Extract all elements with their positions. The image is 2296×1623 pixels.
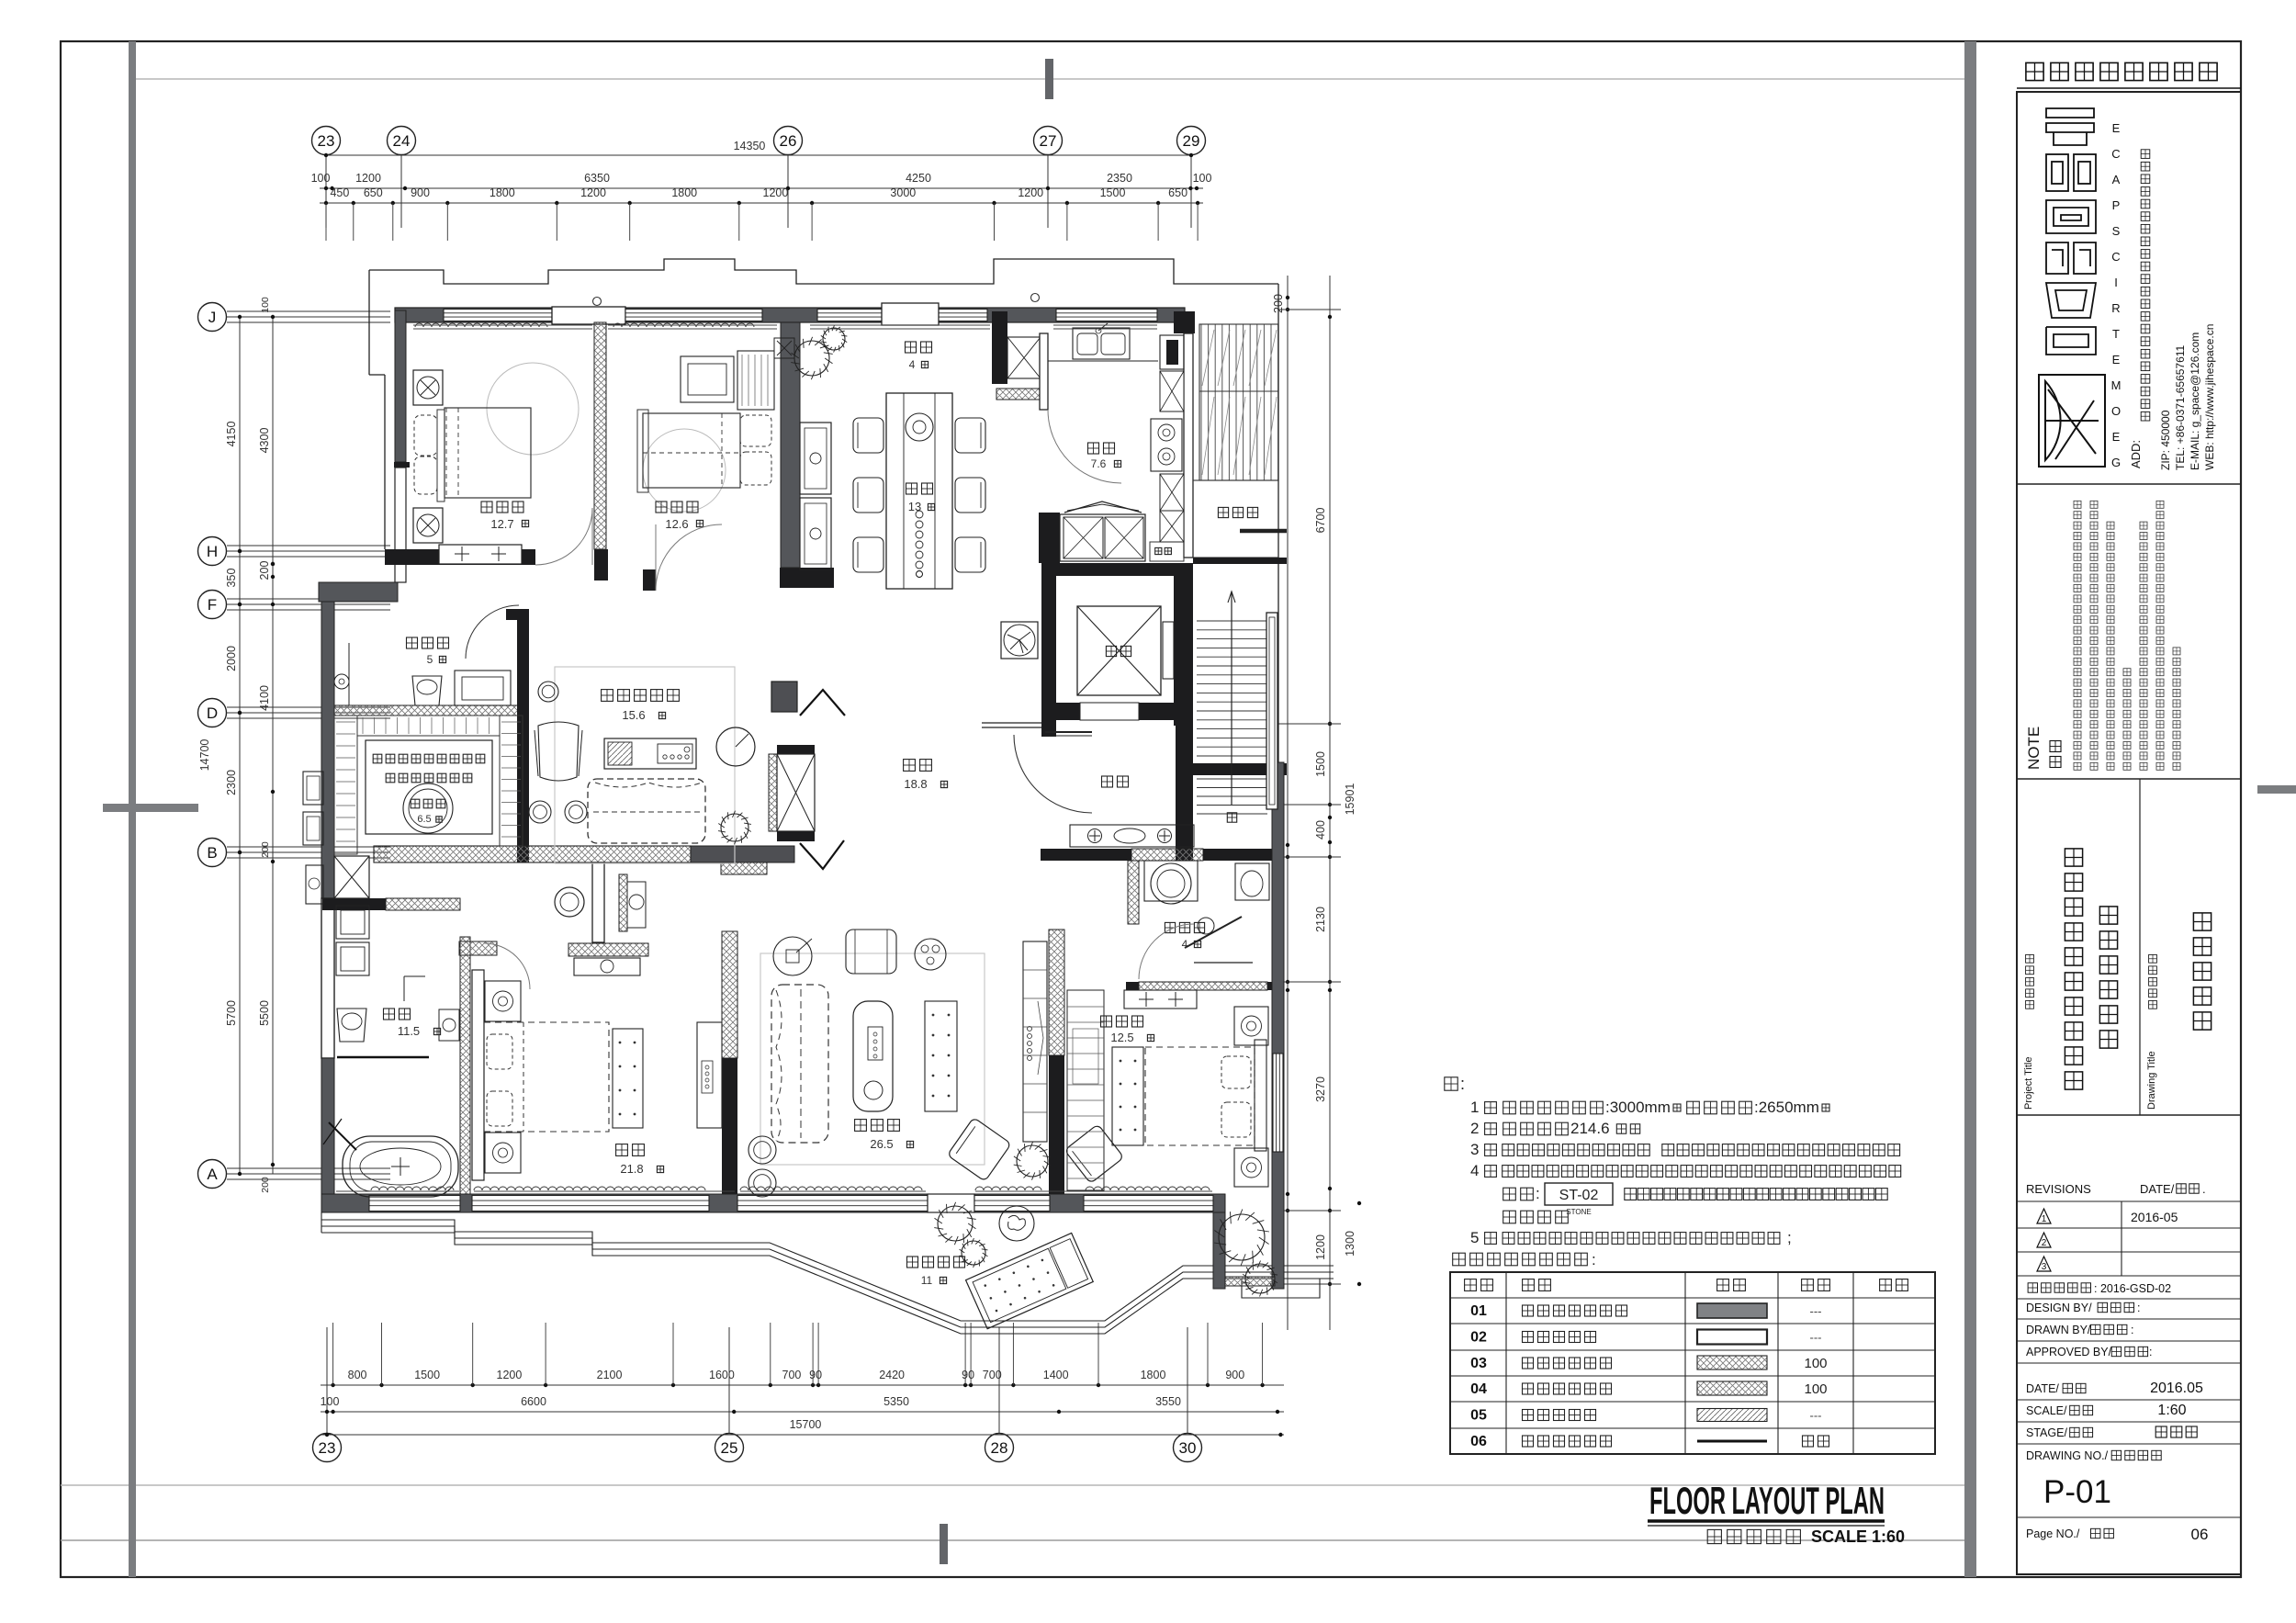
- svg-text:400: 400: [1314, 820, 1327, 840]
- svg-text:04: 04: [1470, 1381, 1487, 1397]
- svg-text:06: 06: [2191, 1526, 2209, 1543]
- svg-text:1500: 1500: [1100, 186, 1126, 199]
- svg-text:S: S: [2112, 224, 2121, 238]
- svg-text:FLOOR LAYOUT PLAN: FLOOR LAYOUT PLAN: [1649, 1479, 1885, 1522]
- svg-text::: :: [2137, 1302, 2140, 1314]
- svg-text:---: ---: [1810, 1409, 1822, 1423]
- svg-text:27: 27: [1040, 132, 1057, 150]
- svg-text:D: D: [207, 704, 218, 722]
- svg-text:28: 28: [991, 1439, 1008, 1457]
- svg-text:14350: 14350: [734, 140, 766, 152]
- svg-text:2: 2: [2042, 1238, 2047, 1248]
- svg-text:2: 2: [1470, 1120, 1479, 1137]
- svg-text:1400: 1400: [1043, 1369, 1069, 1381]
- svg-text:90: 90: [809, 1369, 822, 1381]
- svg-text:J: J: [208, 309, 217, 326]
- svg-text:3: 3: [1470, 1141, 1479, 1158]
- svg-text:T: T: [2112, 327, 2120, 341]
- svg-text:1200: 1200: [1018, 186, 1043, 199]
- svg-text:ZIP: 450000: ZIP: 450000: [2159, 410, 2172, 470]
- svg-text:H: H: [207, 543, 218, 560]
- svg-text:E: E: [2112, 430, 2121, 444]
- svg-text:4100: 4100: [258, 685, 271, 711]
- svg-text::: :: [2131, 1324, 2133, 1336]
- svg-text:1800: 1800: [671, 186, 697, 199]
- svg-text:100: 100: [260, 297, 271, 313]
- svg-text:02: 02: [1470, 1330, 1487, 1346]
- svg-text:11: 11: [921, 1274, 933, 1287]
- svg-text:700: 700: [782, 1369, 802, 1381]
- svg-text:F: F: [208, 596, 217, 614]
- svg-text:6350: 6350: [584, 172, 610, 185]
- svg-text:2016.05: 2016.05: [2150, 1381, 2203, 1396]
- svg-text:11.5: 11.5: [398, 1024, 420, 1038]
- svg-text:1200: 1200: [1314, 1234, 1327, 1260]
- svg-text:15901: 15901: [1344, 783, 1356, 816]
- svg-text:214.6: 214.6: [1570, 1120, 1610, 1137]
- svg-text:Project Title: Project Title: [2023, 1057, 2034, 1110]
- svg-text:A: A: [2112, 173, 2121, 186]
- svg-text:DATE/: DATE/: [2140, 1182, 2175, 1196]
- svg-text:200: 200: [258, 561, 271, 580]
- svg-text:4: 4: [1182, 938, 1188, 951]
- svg-text:2016-05: 2016-05: [2131, 1210, 2178, 1224]
- svg-text::: :: [1592, 1251, 1596, 1268]
- svg-text:15700: 15700: [790, 1418, 822, 1431]
- svg-text:5350: 5350: [884, 1395, 909, 1408]
- svg-text:1800: 1800: [1141, 1369, 1166, 1381]
- svg-text:REVISIONS: REVISIONS: [2026, 1182, 2091, 1196]
- svg-text:WEB: http://www.jihespace.cn: WEB: http://www.jihespace.cn: [2203, 324, 2216, 470]
- svg-text:26.5: 26.5: [870, 1137, 893, 1151]
- svg-text:650: 650: [364, 186, 383, 199]
- svg-text:450: 450: [330, 186, 349, 199]
- svg-text:650: 650: [1168, 186, 1187, 199]
- svg-text:29: 29: [1183, 132, 1200, 150]
- svg-text:M: M: [2111, 378, 2122, 392]
- svg-text:ST-02: ST-02: [1559, 1188, 1599, 1203]
- svg-text:DATE/: DATE/: [2026, 1382, 2059, 1395]
- svg-text:P-01: P-01: [2043, 1474, 2111, 1510]
- svg-text:3000: 3000: [890, 186, 916, 199]
- svg-text:6.5: 6.5: [417, 814, 431, 825]
- svg-text:350: 350: [225, 569, 238, 588]
- svg-text::3000mm: :3000mm: [1605, 1099, 1671, 1116]
- svg-text:A: A: [207, 1166, 218, 1183]
- svg-text:14700: 14700: [198, 739, 211, 772]
- svg-text:E: E: [2112, 121, 2121, 135]
- svg-text:23: 23: [319, 1439, 336, 1457]
- svg-text:SCALE/: SCALE/: [2026, 1404, 2067, 1417]
- svg-text:15.6: 15.6: [622, 708, 645, 722]
- svg-text:12.7: 12.7: [490, 517, 513, 531]
- svg-text:1500: 1500: [1314, 751, 1327, 777]
- svg-text:23: 23: [318, 132, 335, 150]
- svg-text:12.6: 12.6: [665, 517, 688, 531]
- svg-text:3550: 3550: [1155, 1395, 1181, 1408]
- svg-text:5700: 5700: [225, 1000, 238, 1026]
- svg-text:1800: 1800: [490, 186, 515, 199]
- svg-text:90: 90: [962, 1369, 974, 1381]
- svg-text:6700: 6700: [1314, 508, 1327, 534]
- svg-text:STONE: STONE: [1566, 1208, 1591, 1216]
- svg-text:200: 200: [260, 841, 271, 858]
- svg-text:100: 100: [1193, 172, 1212, 185]
- svg-text:5: 5: [1470, 1229, 1479, 1246]
- svg-text:1300: 1300: [1344, 1231, 1356, 1257]
- svg-text:---: ---: [1810, 1331, 1822, 1345]
- svg-text:1: 1: [1470, 1099, 1479, 1116]
- svg-text:2300: 2300: [225, 770, 238, 795]
- svg-text:5: 5: [427, 653, 433, 666]
- svg-text:APPROVED BY/: APPROVED BY/: [2026, 1346, 2112, 1358]
- svg-text:SCALE 1:60: SCALE 1:60: [1811, 1527, 1905, 1546]
- svg-text:1:60: 1:60: [2157, 1403, 2186, 1418]
- svg-text:700: 700: [983, 1369, 1002, 1381]
- svg-text:NOTE: NOTE: [2025, 727, 2043, 770]
- svg-text:1200: 1200: [355, 172, 381, 185]
- svg-text:1: 1: [2042, 1214, 2047, 1224]
- svg-text:05: 05: [1470, 1408, 1487, 1424]
- svg-text:1500: 1500: [414, 1369, 440, 1381]
- svg-text:100: 100: [1804, 1381, 1827, 1397]
- svg-text:2100: 2100: [597, 1369, 623, 1381]
- svg-text:1600: 1600: [709, 1369, 735, 1381]
- svg-text:900: 900: [411, 186, 430, 199]
- svg-text:1200: 1200: [763, 186, 789, 199]
- svg-text::: :: [1460, 1075, 1465, 1093]
- svg-text:03: 03: [1470, 1356, 1487, 1371]
- svg-text:DRAWN BY/: DRAWN BY/: [2026, 1324, 2091, 1336]
- svg-text:24: 24: [393, 132, 411, 150]
- svg-text:2420: 2420: [879, 1369, 905, 1381]
- svg-text:4150: 4150: [225, 422, 238, 447]
- svg-text::: :: [1536, 1185, 1540, 1202]
- svg-text:21.8: 21.8: [620, 1162, 643, 1176]
- svg-text:13: 13: [908, 500, 921, 513]
- svg-text:2130: 2130: [1314, 907, 1327, 932]
- svg-text:6600: 6600: [521, 1395, 546, 1408]
- svg-text:E: E: [2112, 353, 2121, 366]
- svg-text:900: 900: [1225, 1369, 1244, 1381]
- svg-text:DRAWING NO./: DRAWING NO./: [2026, 1449, 2109, 1462]
- svg-text:.: .: [2202, 1182, 2206, 1196]
- svg-text:30: 30: [1179, 1439, 1197, 1457]
- svg-text:Page NO./: Page NO./: [2026, 1527, 2080, 1540]
- svg-text:25: 25: [721, 1439, 738, 1457]
- svg-text:ADD:: ADD:: [2129, 440, 2143, 468]
- svg-text:DESIGN BY/: DESIGN BY/: [2026, 1302, 2092, 1314]
- svg-text:100: 100: [1804, 1356, 1827, 1371]
- svg-text:200: 200: [260, 1177, 271, 1193]
- svg-text:01: 01: [1470, 1303, 1487, 1319]
- svg-text:18.8: 18.8: [904, 777, 927, 791]
- svg-text:O: O: [2111, 404, 2121, 418]
- svg-text:Drawing Title: Drawing Title: [2146, 1051, 2157, 1110]
- svg-text:;: ;: [1787, 1229, 1792, 1246]
- svg-text:3270: 3270: [1314, 1076, 1327, 1102]
- svg-text:E-MAIL: g_space@126.com: E-MAIL: g_space@126.com: [2189, 332, 2201, 470]
- svg-text:4: 4: [909, 358, 916, 371]
- svg-text:G: G: [2111, 456, 2121, 469]
- svg-text:06: 06: [1470, 1434, 1487, 1449]
- svg-text:100: 100: [311, 172, 331, 185]
- svg-text:---: ---: [1810, 1304, 1822, 1318]
- svg-text:I: I: [2114, 276, 2118, 289]
- svg-text:STAGE/: STAGE/: [2026, 1426, 2067, 1439]
- svg-text::: :: [2149, 1346, 2152, 1358]
- svg-text:800: 800: [348, 1369, 367, 1381]
- svg-text:: 2016-GSD-02: : 2016-GSD-02: [2094, 1282, 2171, 1295]
- svg-text:12.5: 12.5: [1110, 1031, 1133, 1044]
- svg-text:P: P: [2112, 198, 2121, 212]
- svg-text:TEL: +86-0371-65657611: TEL: +86-0371-65657611: [2174, 344, 2187, 470]
- svg-text:1200: 1200: [497, 1369, 523, 1381]
- svg-text:B: B: [207, 844, 217, 862]
- svg-text:26: 26: [780, 132, 797, 150]
- svg-text:100: 100: [321, 1395, 340, 1408]
- svg-text::2650mm: :2650mm: [1754, 1099, 1819, 1116]
- svg-text:1200: 1200: [580, 186, 606, 199]
- svg-text:7.6: 7.6: [1091, 457, 1107, 470]
- svg-text:4: 4: [1470, 1162, 1479, 1179]
- svg-text:3: 3: [2042, 1262, 2047, 1272]
- svg-text:5500: 5500: [258, 1000, 271, 1026]
- svg-text:4250: 4250: [906, 172, 931, 185]
- svg-text:4300: 4300: [258, 428, 271, 454]
- svg-text:2350: 2350: [1107, 172, 1132, 185]
- svg-text:C: C: [2111, 250, 2120, 264]
- svg-text:R: R: [2111, 301, 2120, 315]
- svg-text:2000: 2000: [225, 646, 238, 671]
- svg-text:C: C: [2111, 147, 2120, 161]
